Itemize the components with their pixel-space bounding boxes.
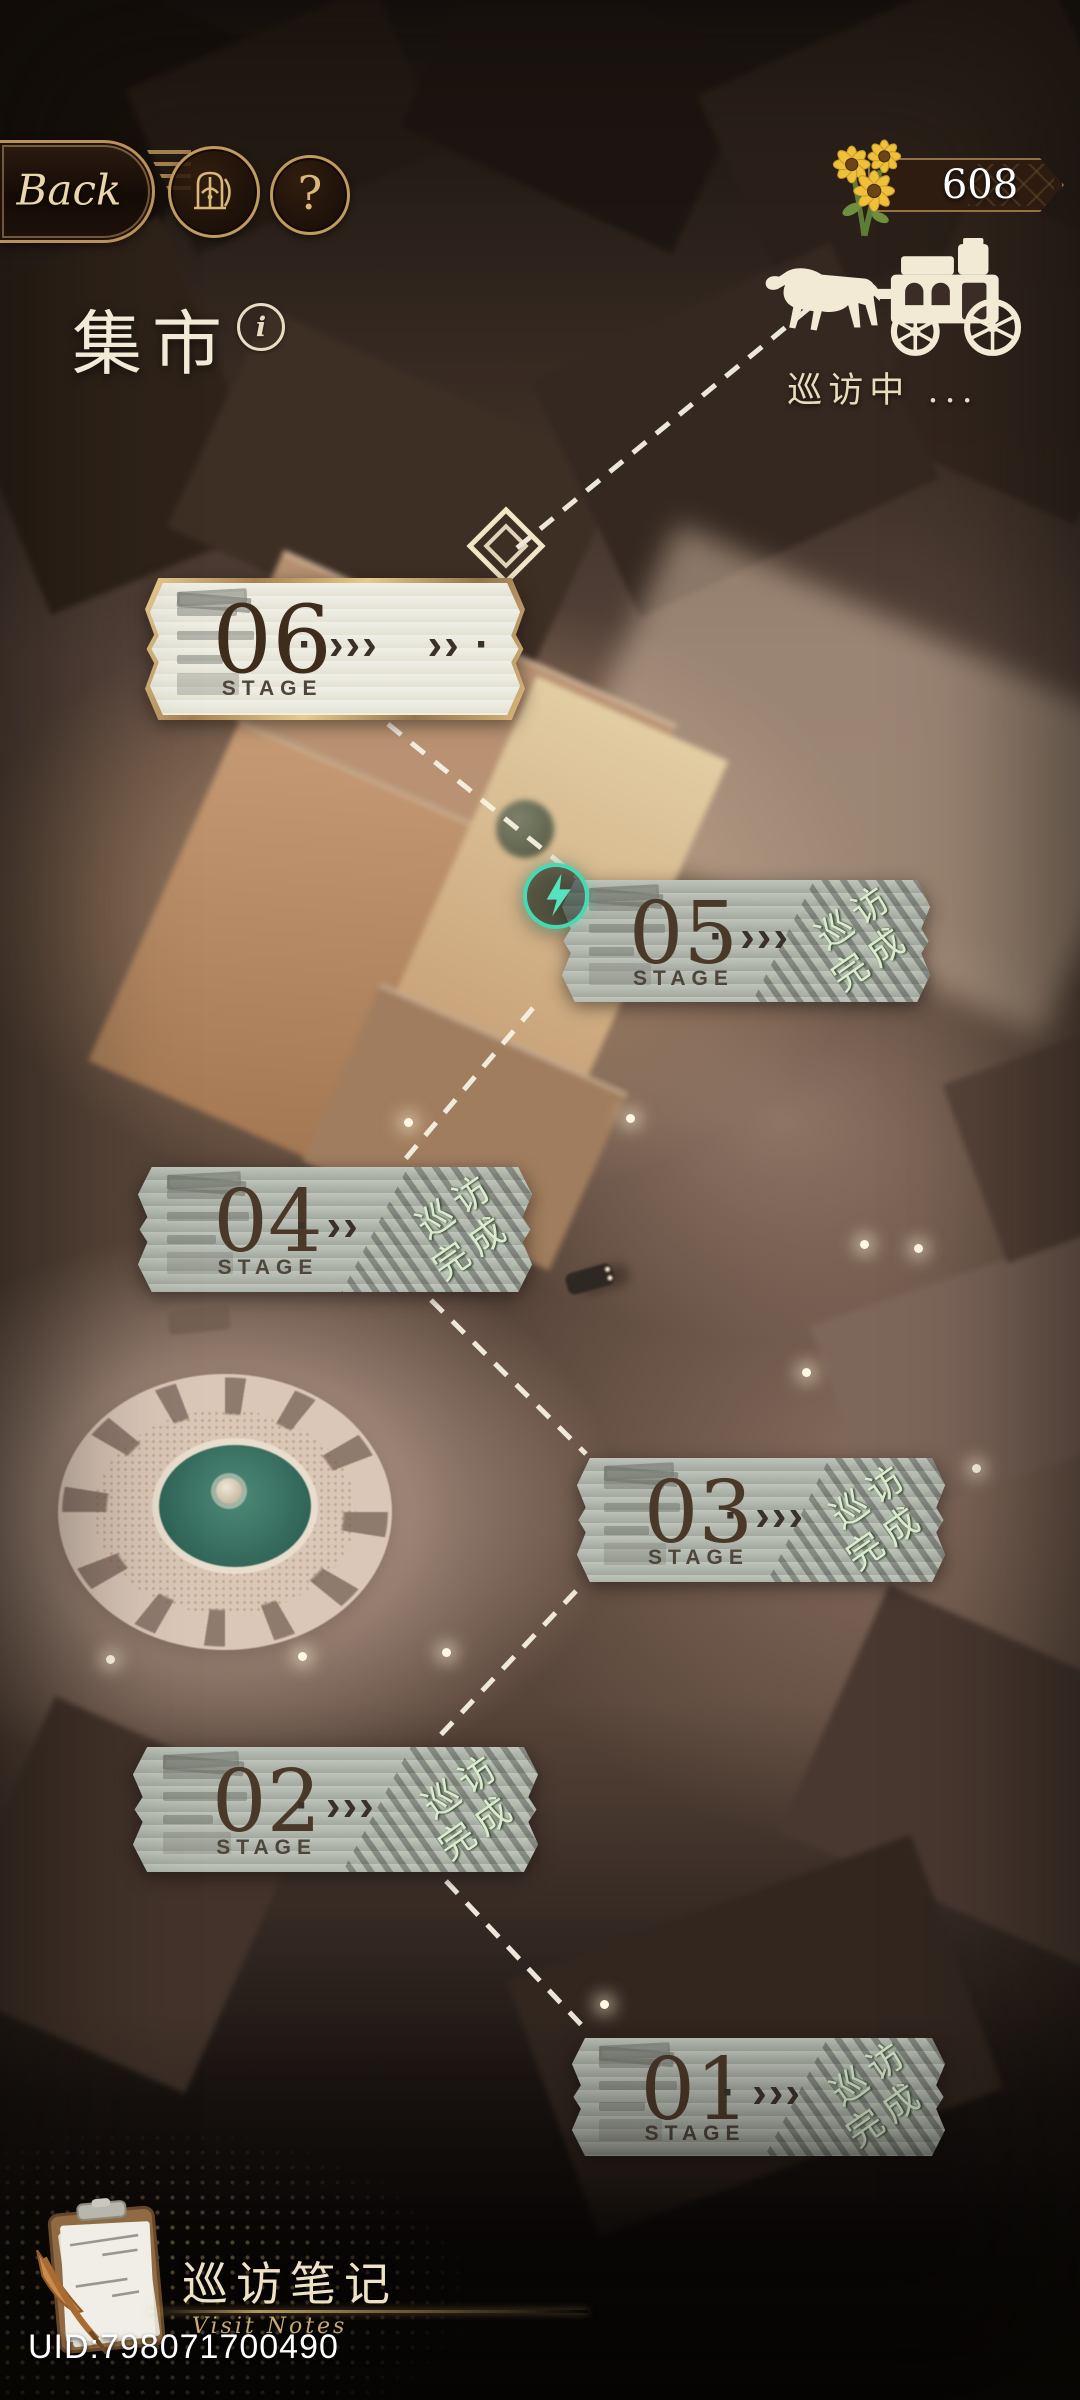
info-circle-icon[interactable]: i bbox=[237, 303, 285, 351]
back-button-label: Back bbox=[0, 165, 138, 214]
plaza-compass-points bbox=[58, 1374, 392, 1650]
street-lamp bbox=[106, 1655, 115, 1664]
street-lamp bbox=[914, 1244, 923, 1253]
stage-label: STAGE bbox=[633, 967, 734, 991]
uid-text: UID:798071700490 bbox=[28, 2328, 339, 2367]
stage-banner-06[interactable]: 06 STAGE · ››› ›› · bbox=[145, 578, 525, 720]
chevron-decoration: · ››› bbox=[298, 620, 379, 670]
street-lamp bbox=[972, 1464, 981, 1473]
patrol-status-text: 巡访中 ... bbox=[758, 362, 1008, 413]
street-lamp bbox=[600, 2000, 609, 2009]
street-lamp bbox=[802, 1368, 811, 1377]
map-dome bbox=[496, 800, 554, 858]
stage-banner-01[interactable]: 01 STAGE · ››› 巡访完成 bbox=[567, 2033, 950, 2161]
stage-label: STAGE bbox=[216, 1836, 317, 1860]
market-stage-map-screen: 06 STAGE · ››› ›› · 05 STAGE · ››› 巡访完成 … bbox=[0, 0, 1080, 2400]
question-mark-icon: ? bbox=[273, 158, 347, 232]
stage-banner-surface: 04 STAGE · ›› 巡访完成 bbox=[138, 1167, 532, 1292]
stage-banner-surface: 02 STAGE · ››› 巡访完成 bbox=[133, 1747, 538, 1872]
stage-banner-03[interactable]: 03 STAGE · ››› 巡访完成 bbox=[572, 1453, 950, 1587]
lightning-bolt-icon[interactable] bbox=[523, 863, 589, 929]
sunflower-bouquet-icon bbox=[826, 138, 910, 248]
plaza-mosaic-ring bbox=[94, 1410, 356, 1614]
patrol-notes-title[interactable]: 巡访笔记 bbox=[182, 2248, 398, 2314]
stage-label: STAGE bbox=[648, 1546, 749, 1570]
chevron-decoration: ›› · bbox=[428, 620, 492, 670]
chevron-decoration: · ››› bbox=[295, 1781, 376, 1831]
street-lamp bbox=[860, 1240, 869, 1249]
map-building bbox=[400, 0, 761, 254]
stage-banner-04[interactable]: 04 STAGE · ›› 巡访完成 bbox=[133, 1162, 537, 1297]
stage-label: STAGE bbox=[645, 2122, 746, 2146]
patrol-caravan-status[interactable]: 巡访中 ... bbox=[758, 238, 1038, 398]
map-building bbox=[779, 1585, 1080, 1966]
map-horse-cart bbox=[167, 1305, 231, 1335]
map-building-lit bbox=[88, 719, 542, 1195]
info-glyph: i bbox=[256, 312, 266, 343]
back-button[interactable]: Back bbox=[0, 140, 155, 243]
stage-banner-surface: 05 STAGE · ››› 巡访完成 bbox=[562, 880, 930, 1002]
fountain-plaza bbox=[58, 1374, 392, 1650]
horse-carriage-icon bbox=[758, 238, 1038, 360]
stage-banner-surface: 06 STAGE · ››› ›› · bbox=[150, 583, 520, 715]
street-lamp bbox=[442, 1648, 451, 1657]
stage-label: STAGE bbox=[218, 1256, 319, 1280]
chevron-decoration: · ›› bbox=[296, 1201, 360, 1251]
plaza-outer-ring bbox=[58, 1374, 392, 1650]
stage-label: STAGE bbox=[222, 677, 323, 701]
help-button[interactable]: ? bbox=[270, 155, 350, 235]
building-entrance-button[interactable] bbox=[168, 146, 260, 238]
street-lamp bbox=[404, 1118, 413, 1127]
stage-banner-surface: 03 STAGE · ››› 巡访完成 bbox=[577, 1458, 945, 1582]
arched-door-icon bbox=[190, 166, 234, 214]
map-car bbox=[564, 1262, 616, 1296]
stage-banner-surface: 01 STAGE · ››› 巡访完成 bbox=[572, 2038, 945, 2156]
street-lamp bbox=[626, 1114, 635, 1123]
fountain-center bbox=[216, 1478, 242, 1504]
street-lamp bbox=[298, 1652, 307, 1661]
diamond-path-marker-icon bbox=[478, 518, 534, 574]
fountain-basin bbox=[152, 1438, 318, 1574]
map-building bbox=[0, 215, 283, 615]
stage-banner-05[interactable]: 05 STAGE · ››› 巡访完成 bbox=[557, 875, 935, 1007]
page-title: 集市 bbox=[72, 288, 232, 389]
map-building bbox=[943, 1027, 1080, 1264]
stage-banner-02[interactable]: 02 STAGE · ››› 巡访完成 bbox=[128, 1742, 543, 1877]
